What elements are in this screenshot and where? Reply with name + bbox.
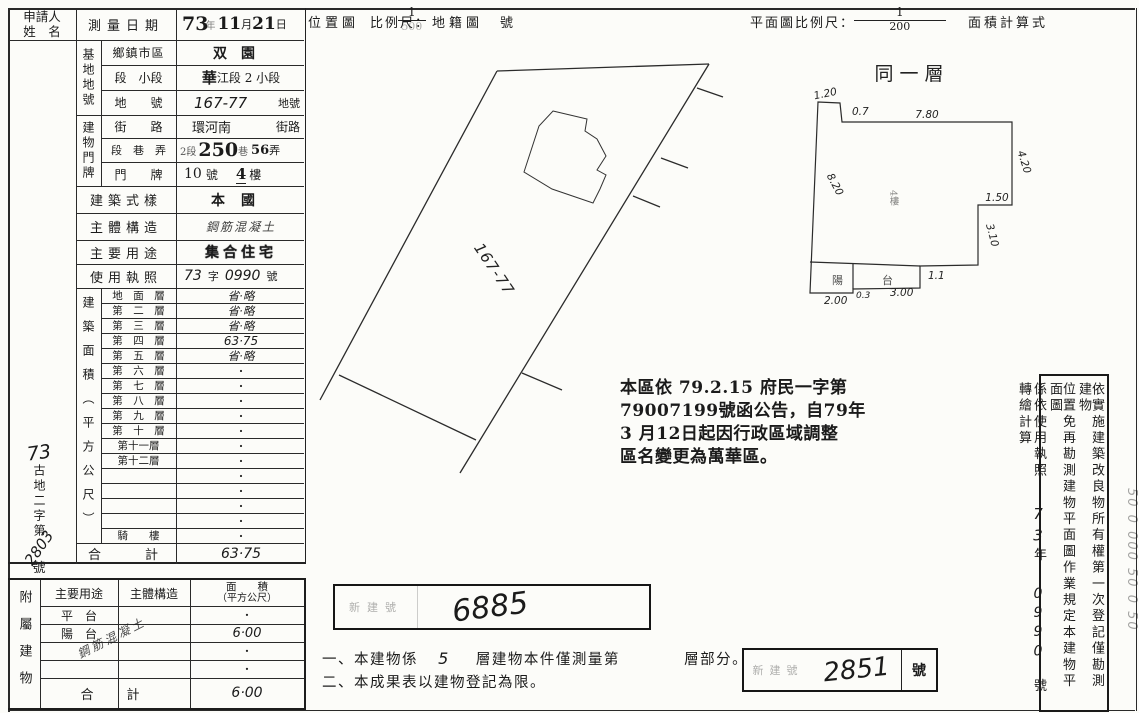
border-line xyxy=(8,710,1135,711)
floor-row-value: 省·略 xyxy=(176,348,306,363)
attached-row-area: 6·00 xyxy=(190,624,304,642)
boundary-tick xyxy=(661,158,688,168)
attached-row-use: 平 台 xyxy=(40,606,118,624)
floor-plan-center-label: 4樓 xyxy=(888,190,900,206)
lane-label: 段 巷 弄 xyxy=(101,138,176,162)
ref-stamp-number: 2803 xyxy=(21,527,58,569)
floor-total-value: 63·75 xyxy=(176,543,306,564)
building-footprint xyxy=(524,111,606,203)
floor-row-value: · xyxy=(176,393,306,408)
regulation-col-1: 依實施建築改良物所有權第一次登記僅勘測建物 xyxy=(1077,382,1103,704)
attached-total-value: 6·00 xyxy=(190,678,304,708)
floor-row-value: · xyxy=(176,498,306,513)
floor-row-label: 第十二層 xyxy=(101,453,176,468)
announcement-line: 79007199號函公告，自79年 xyxy=(620,400,940,423)
floor-row-label: 第 十 層 xyxy=(101,423,176,438)
attached-total-label: 合 計 xyxy=(40,678,190,708)
floor-row-label: 第 四 層 xyxy=(101,333,176,348)
license-suffix: 號 xyxy=(266,268,277,284)
regulation-col3-number: 0990 xyxy=(1030,586,1046,663)
lane-value: 2段 250 巷 56 弄 xyxy=(176,138,310,162)
applicant-name-cell: 申請人 姓 名 xyxy=(8,8,76,40)
usage-value: 集合住宅 xyxy=(176,240,306,264)
floor-plan-title: 同一層 xyxy=(874,63,949,85)
street-name: 環河南 xyxy=(192,117,231,136)
site-boundary-bottom xyxy=(339,375,476,440)
floor-row-value: · xyxy=(176,378,306,393)
ref-number-stamp: 73 古地二字第 2803 號 xyxy=(12,442,66,576)
receipt-number-label: 新建號 xyxy=(744,650,812,690)
license-year: 73 xyxy=(184,268,202,284)
applicant-label-line1: 申請人 xyxy=(23,9,61,24)
floor-row-value: · xyxy=(176,483,306,498)
style-value: 本國 xyxy=(176,186,306,213)
note1-floor-count: 5 xyxy=(438,649,450,668)
site-boundary-left xyxy=(320,71,497,400)
dim-balcony-width: 3.00 xyxy=(890,287,914,299)
dim-right-lower: 3.10 xyxy=(983,222,1001,248)
regulation-col3-year-unit: 年 xyxy=(1031,548,1046,564)
survey-date-value: 73 年 11 月 21 日 xyxy=(176,8,312,40)
attached-building-table: 附屬建物 主要用途 主體構造 面 積 （平方公尺） 平 台 · 陽 台 6·00… xyxy=(8,578,306,710)
v-gap xyxy=(1038,663,1039,679)
alley-number: 56 xyxy=(251,143,269,158)
survey-date-label: 測量日期 xyxy=(76,8,176,40)
style-label: 建築式樣 xyxy=(76,186,176,213)
receipt-number-box: 新建號 2851 號 xyxy=(742,648,938,692)
building-number-box: 新建號 6885 xyxy=(333,584,651,630)
floor-row-label: 騎 樓 xyxy=(101,528,176,543)
floor-row-label: 第 八 層 xyxy=(101,393,176,408)
location-map-label: 位置圖 xyxy=(308,12,359,30)
receipt-number-value: 2851 xyxy=(811,650,903,689)
dim-right-upper: 4.20 xyxy=(1015,149,1034,175)
usage-label: 主要用途 xyxy=(76,240,176,264)
note-line-2: 二、本成果表以建物登記為限。 xyxy=(322,671,546,692)
floor-row-label xyxy=(101,498,176,513)
license-zi: 字 xyxy=(208,268,219,284)
announcement-line: 3 月12日起因行政區域調整 xyxy=(620,423,940,446)
building-number-label: 新建號 xyxy=(335,586,418,628)
floor-row-label: 第 九 層 xyxy=(101,408,176,423)
site-parcel-label: 167-77 xyxy=(470,240,518,299)
attached-group-label: 附屬建物 xyxy=(8,580,40,708)
v-gap xyxy=(1038,564,1039,586)
district-change-announcement: 本區依 79.2.15 府民一字第 79007199號函公告，自79年 3 月1… xyxy=(620,377,940,469)
lane-section: 2段 xyxy=(180,143,196,158)
note1-mid: 層建物本件僅測量第 xyxy=(476,652,620,668)
door-number-value: 10 號 4 樓 xyxy=(176,162,314,186)
site-group-label: 基地地號 xyxy=(76,40,101,115)
floor-row-label: 第 六 層 xyxy=(101,363,176,378)
boundary-tick xyxy=(522,373,562,390)
attached-row-area: · xyxy=(190,642,304,660)
receipt-number-suffix: 號 xyxy=(901,650,936,690)
cadastral-map-label: 地籍圖 xyxy=(432,12,483,30)
floor-row-value: · xyxy=(176,438,306,453)
cadastral-no-suffix: 號 xyxy=(500,12,513,30)
floor-row-label xyxy=(101,468,176,483)
floor-row-value: 63·75 xyxy=(176,333,306,348)
plan-scale-numerator: 1 xyxy=(854,6,946,21)
date-year-unit: 年 xyxy=(205,17,215,32)
floor-row-label: 第十一層 xyxy=(101,438,176,453)
floor-row-label xyxy=(101,513,176,528)
announcement-line: 本區依 79.2.15 府民一字第 xyxy=(620,377,940,400)
door-floor: 4 xyxy=(236,165,246,184)
site-boundary-top xyxy=(497,64,709,71)
floor-row-value: · xyxy=(176,423,306,438)
structure-label: 主體構造 xyxy=(76,213,176,240)
attached-row-area: · xyxy=(190,606,304,624)
floor-row-label: 第 五 層 xyxy=(101,348,176,363)
door-number: 10 xyxy=(184,166,202,182)
dim-bottom-left: 2.00 xyxy=(824,295,848,307)
lane-suffix: 巷 xyxy=(238,143,248,158)
dim-bottom-mid: 0.3 xyxy=(856,291,871,301)
dim-notch-width: 1.20 xyxy=(813,86,839,103)
street-label: 街 路 xyxy=(101,115,176,138)
floor-row-value: · xyxy=(176,453,306,468)
balcony-divider xyxy=(810,262,920,266)
parcel-value: 167-77 地號 xyxy=(176,90,306,115)
district-value: 双園 xyxy=(176,40,306,65)
license-value: 73 字 0990 號 xyxy=(176,264,314,288)
parcel-number: 167-77 xyxy=(194,94,247,112)
building-number-value: 6885 xyxy=(450,585,530,629)
scale-numerator: 1 xyxy=(398,6,426,21)
door-number-suffix: 號 xyxy=(206,166,218,183)
floor-row-value: 省·略 xyxy=(176,318,306,333)
door-number-label: 門 牌 xyxy=(101,162,176,186)
district-label: 鄉鎮市區 xyxy=(101,40,176,65)
announcement-line: 區名變更為萬華區。 xyxy=(620,446,940,469)
floor-row-value: 省·略 xyxy=(176,303,306,318)
survey-document-page: 位置圖 比例尺： 1 500 地籍圖 號 平面圖比例尺： 1 200 面積計算式 xyxy=(0,0,1139,713)
dim-balcony-depth: 1.1 xyxy=(928,270,945,282)
area-header-line2: （平方公尺） xyxy=(217,593,277,605)
regulation-col3-year: 73 xyxy=(1029,505,1047,547)
floor-area-group-label: 建築面積（平方公尺） xyxy=(76,288,101,543)
floor-row-label: 第 七 層 xyxy=(101,378,176,393)
v-gap xyxy=(1038,479,1039,505)
dim-notch-depth: 0.7 xyxy=(852,106,869,118)
plan-scale-denominator: 200 xyxy=(854,21,946,34)
plan-scale-fraction: 1 200 xyxy=(854,6,946,33)
street-suffix: 街路 xyxy=(276,118,300,135)
door-group-label: 建物門牌 xyxy=(76,115,101,186)
date-month: 11 xyxy=(217,14,241,34)
note1-pre: 一、本建物係 xyxy=(322,652,418,668)
structure-value: 鋼筋混凝土 xyxy=(176,213,306,240)
dim-top: 7.80 xyxy=(915,109,939,121)
floor-row-value: · xyxy=(176,363,306,378)
section-value-stamp: 華 xyxy=(202,67,217,88)
license-label: 使用執照 xyxy=(76,264,176,288)
attached-use-header: 主要用途 xyxy=(40,580,118,606)
floor-plan-outline xyxy=(810,102,1012,293)
date-day: 21 xyxy=(252,14,276,34)
floor-row-label: 第 二 層 xyxy=(101,303,176,318)
floor-plan: 同一層 1.20 0.7 7.80 4.20 1.50 3.10 8.20 2.… xyxy=(793,55,1048,315)
floor-row-value: · xyxy=(176,528,306,543)
edge-print-marks: 50 0 000 50 0 50 xyxy=(1124,488,1139,706)
floor-total-label: 合 計 xyxy=(76,543,176,564)
alley-suffix: 弄 xyxy=(269,142,280,158)
floor-row-label: 地 面 層 xyxy=(101,288,176,303)
scale-denominator: 500 xyxy=(398,21,426,34)
date-month-unit: 月 xyxy=(241,16,252,32)
regulation-col-2: 位置免再勘測建物平面圖作業規定本建物平面圖 xyxy=(1048,382,1074,704)
section-label: 段 小段 xyxy=(101,65,176,90)
regulation-note-box: 依實施建築改良物所有權第一次登記僅勘測建物 位置免再勘測建物平面圖作業規定本建物… xyxy=(1039,374,1109,712)
street-value: 環河南 街路 xyxy=(176,115,306,138)
ref-stamp-year: 73 xyxy=(25,440,52,465)
parcel-label: 地 號 xyxy=(101,90,176,115)
parcel-suffix: 地號 xyxy=(278,95,300,111)
section-value-rest: 江段 2 小段 xyxy=(217,69,280,86)
area-header-line1: 面 積 xyxy=(226,581,268,593)
balcony-label: 陽 台 xyxy=(832,273,907,287)
floor-row-label xyxy=(101,483,176,498)
floor-row-value: · xyxy=(176,408,306,423)
attached-row-use xyxy=(40,660,118,678)
boundary-tick xyxy=(697,88,723,97)
location-scale-fraction: 1 500 xyxy=(398,6,426,33)
note1-end: 層部分。 xyxy=(684,652,748,668)
applicant-label-line2: 姓 名 xyxy=(23,24,61,39)
door-floor-suffix: 樓 xyxy=(249,166,261,183)
dim-step: 1.50 xyxy=(985,192,1009,204)
dim-left: 8.20 xyxy=(824,171,846,198)
floor-row-label: 第 三 層 xyxy=(101,318,176,333)
regulation-col-3: 係依使用執照73年0990號轉繪計算 xyxy=(1017,382,1045,704)
floor-row-value: · xyxy=(176,468,306,483)
section-value: 華 江段 2 小段 xyxy=(176,65,306,90)
attached-row-area: · xyxy=(190,660,304,678)
floor-row-value: 省·略 xyxy=(176,288,306,303)
area-formula-label: 面積計算式 xyxy=(968,12,1048,30)
regulation-col3-pre: 係依使用執照 xyxy=(1031,382,1046,479)
boundary-tick xyxy=(633,196,660,207)
lane-number: 250 xyxy=(198,139,238,161)
date-day-unit: 日 xyxy=(276,16,287,32)
plan-scale-label: 平面圖比例尺： xyxy=(750,12,855,30)
license-number: 0990 xyxy=(225,268,261,284)
floor-row-value: · xyxy=(176,513,306,528)
note-line-1: 一、本建物係 5 層建物本件僅測量第 層部分。 xyxy=(322,648,748,669)
